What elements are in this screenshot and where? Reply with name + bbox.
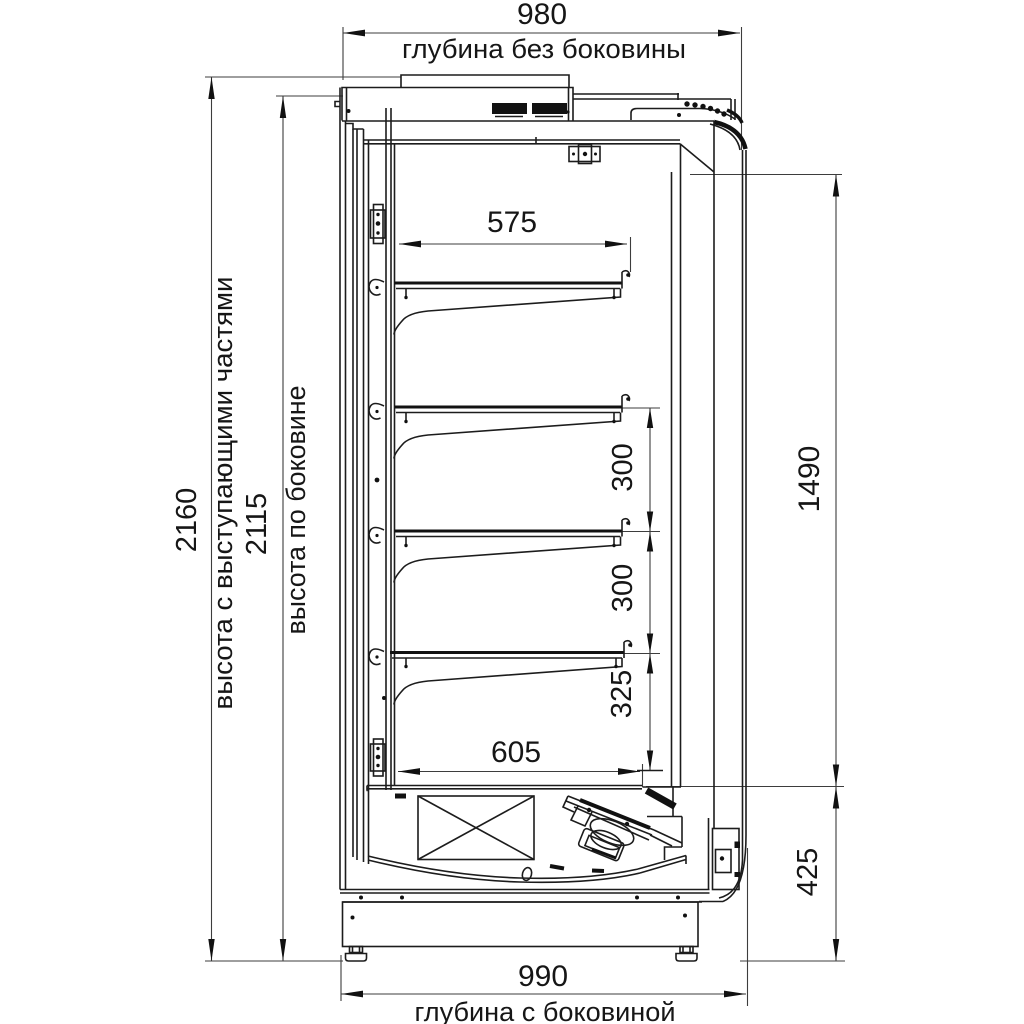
svg-text:глубина без боковины: глубина без боковины bbox=[402, 34, 686, 64]
svg-text:425: 425 bbox=[792, 848, 824, 896]
svg-text:300: 300 bbox=[607, 564, 639, 612]
svg-text:глубина с боковиной: глубина с боковиной bbox=[415, 997, 676, 1024]
svg-text:высота по боковине: высота по боковине bbox=[281, 386, 311, 635]
svg-text:1490: 1490 bbox=[793, 446, 826, 513]
svg-text:990: 990 bbox=[518, 960, 568, 993]
svg-text:2160: 2160 bbox=[171, 488, 203, 553]
svg-text:высота с выступающими частями: высота с выступающими частями bbox=[208, 277, 238, 710]
svg-text:575: 575 bbox=[487, 206, 537, 239]
svg-text:325: 325 bbox=[606, 670, 638, 718]
svg-text:2115: 2115 bbox=[241, 493, 273, 555]
svg-text:605: 605 bbox=[491, 736, 541, 769]
svg-text:980: 980 bbox=[517, 0, 567, 31]
svg-text:300: 300 bbox=[607, 443, 639, 491]
